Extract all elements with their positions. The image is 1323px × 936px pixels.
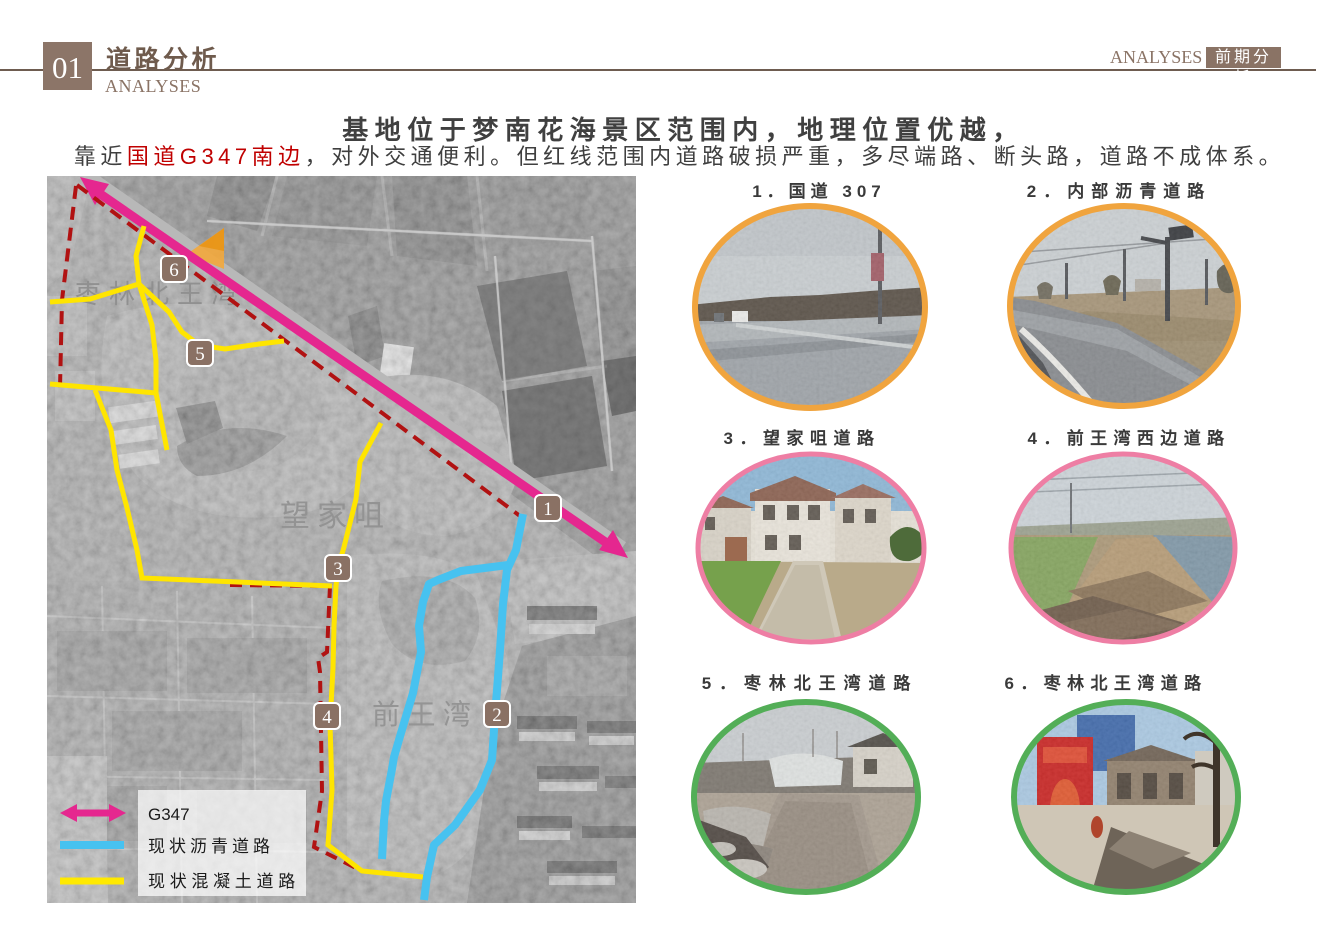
svg-text:现状沥青道路: 现状沥青道路 — [148, 837, 274, 856]
svg-text:前王湾: 前王湾 — [372, 699, 479, 730]
svg-text:4: 4 — [322, 707, 332, 728]
svg-text:望家咀: 望家咀 — [280, 500, 391, 533]
svg-text:现状混凝土道路: 现状混凝土道路 — [148, 872, 300, 891]
svg-text:2: 2 — [492, 705, 502, 726]
svg-text:G347: G347 — [148, 805, 190, 824]
svg-text:5: 5 — [195, 344, 205, 365]
svg-text:3: 3 — [333, 559, 343, 580]
svg-text:1: 1 — [543, 499, 553, 520]
svg-text:6: 6 — [169, 260, 179, 281]
